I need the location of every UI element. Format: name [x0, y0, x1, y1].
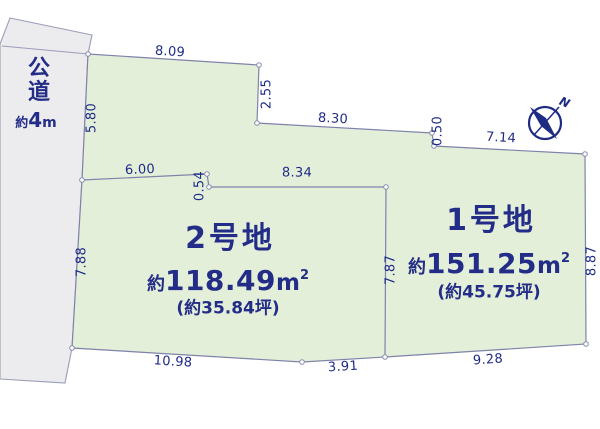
- road-width-unit: m: [42, 115, 57, 131]
- dim-north-right: 7.14: [486, 131, 517, 146]
- plot2-area: 約118.49m2: [147, 267, 309, 295]
- dim-east-side: 8.87: [586, 246, 599, 276]
- road-name-label: 公 道: [28, 57, 50, 105]
- plot1-area-unit-sup: 2: [561, 251, 570, 266]
- plot2-area-unit-sup: 2: [300, 268, 309, 283]
- dim-divider-west: 6.00: [125, 163, 156, 177]
- dim-north-mid: 8.30: [318, 112, 349, 127]
- plot2-area-prefix: 約: [147, 274, 165, 295]
- compass-north-label: N: [557, 94, 572, 111]
- plot2-tsubo: (約35.84坪): [176, 301, 279, 318]
- road-width-label: 約4m: [15, 110, 57, 130]
- dim-road-frontage-plot2: 7.88: [76, 247, 89, 277]
- dim-north-upper: 8.09: [155, 45, 186, 60]
- plot1-area-unit: m: [537, 253, 561, 279]
- plot1-area-value: 151.25: [426, 247, 537, 280]
- plot1-name: 1号地: [446, 206, 536, 236]
- dim-south-middle: 3.91: [328, 360, 359, 375]
- dim-north-step-2: 0.50: [432, 116, 445, 146]
- road-width-prefix: 約: [15, 116, 28, 131]
- dim-north-step: 2.55: [261, 79, 274, 109]
- road-name-char-1: 公: [28, 57, 50, 81]
- land-plot-diagram: N 8.09 2.55 8.30 0.50 7.14 5.80 6.00 0.5…: [0, 0, 600, 429]
- plot1-area-prefix: 約: [408, 257, 426, 278]
- dim-south-plot2: 10.98: [153, 354, 192, 369]
- dim-divider-step: 0.54: [194, 171, 207, 201]
- dim-divider-east: 7.87: [385, 255, 398, 285]
- plot1-area: 約151.25m2: [408, 250, 570, 278]
- plot2-area-value: 118.49: [165, 264, 276, 297]
- road-name-char-2: 道: [28, 81, 50, 105]
- road-width-value: 4: [28, 108, 42, 132]
- compass-north-icon: N: [529, 94, 572, 139]
- plot1-tsubo: (約45.75坪): [437, 285, 540, 302]
- plot2-area-unit: m: [276, 270, 300, 296]
- dim-divider-north: 8.34: [282, 166, 312, 179]
- dim-road-frontage-upper: 5.80: [86, 103, 99, 133]
- dim-south-plot1: 9.28: [473, 352, 504, 367]
- plot2-name: 2号地: [185, 224, 275, 254]
